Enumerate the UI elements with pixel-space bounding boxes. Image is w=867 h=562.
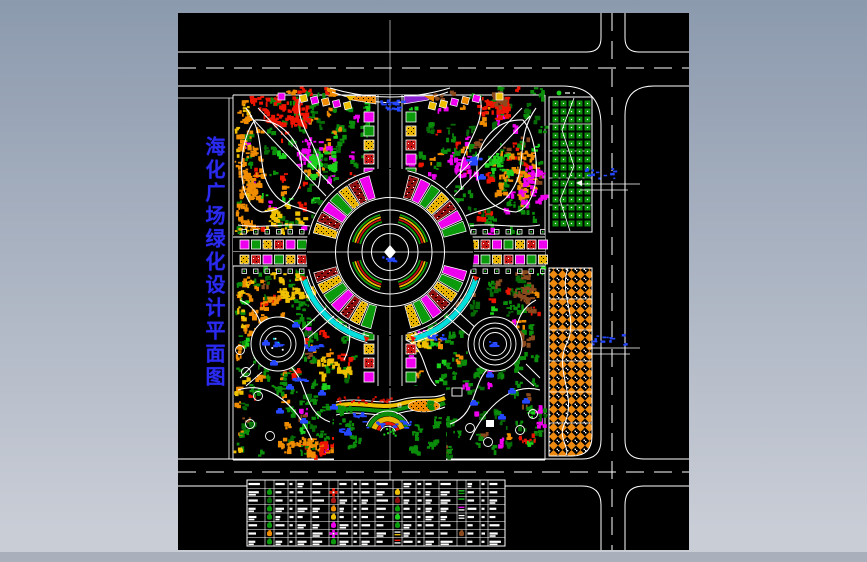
central-plaza — [306, 168, 474, 336]
footer-bar — [0, 552, 867, 562]
parking-strips — [549, 91, 592, 456]
plant-legend-table — [247, 480, 505, 546]
drawing-title: 海化广场绿化设计平面图 — [198, 136, 226, 406]
south-water-garden — [334, 386, 446, 460]
plan-drawing — [0, 0, 867, 562]
cad-viewer-stage: 海化广场绿化设计平面图 — [0, 0, 867, 562]
